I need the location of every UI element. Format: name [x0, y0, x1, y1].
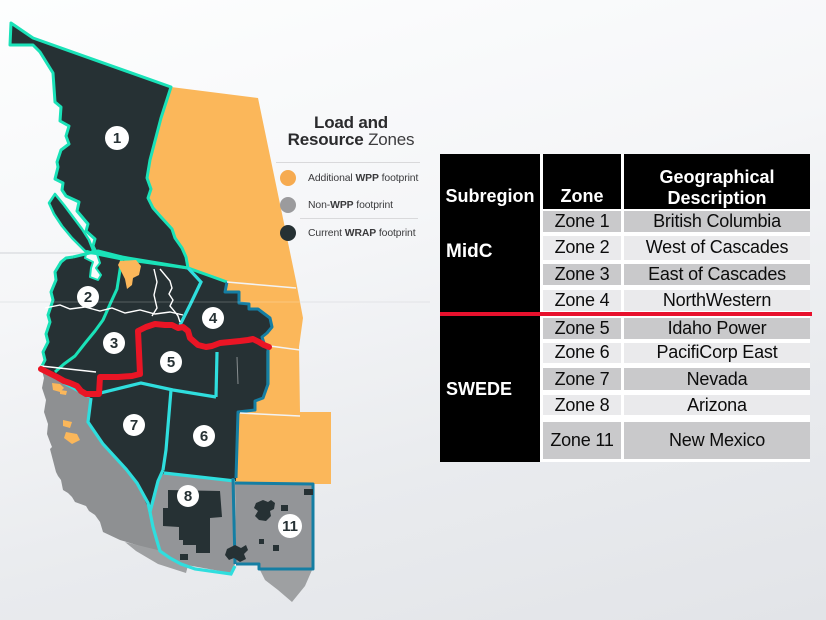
svg-text:4: 4 — [209, 310, 218, 327]
svg-text:8: 8 — [184, 488, 192, 505]
svg-text:11: 11 — [282, 518, 298, 535]
svg-text:1: 1 — [113, 130, 121, 147]
svg-text:2: 2 — [84, 289, 92, 306]
svg-text:7: 7 — [130, 417, 138, 434]
svg-text:3: 3 — [110, 335, 118, 352]
svg-text:5: 5 — [167, 354, 175, 371]
svg-text:6: 6 — [200, 428, 208, 445]
